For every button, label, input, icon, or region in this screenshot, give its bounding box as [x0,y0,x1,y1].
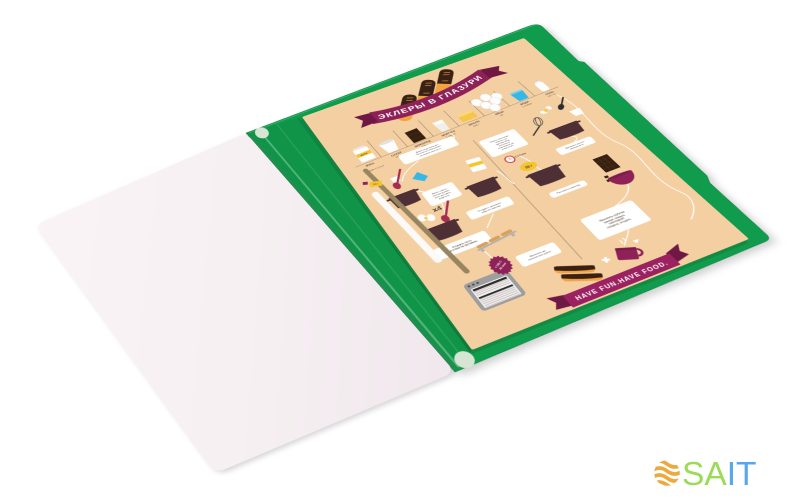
svg-text:SAIT: SAIT [682,456,756,493]
